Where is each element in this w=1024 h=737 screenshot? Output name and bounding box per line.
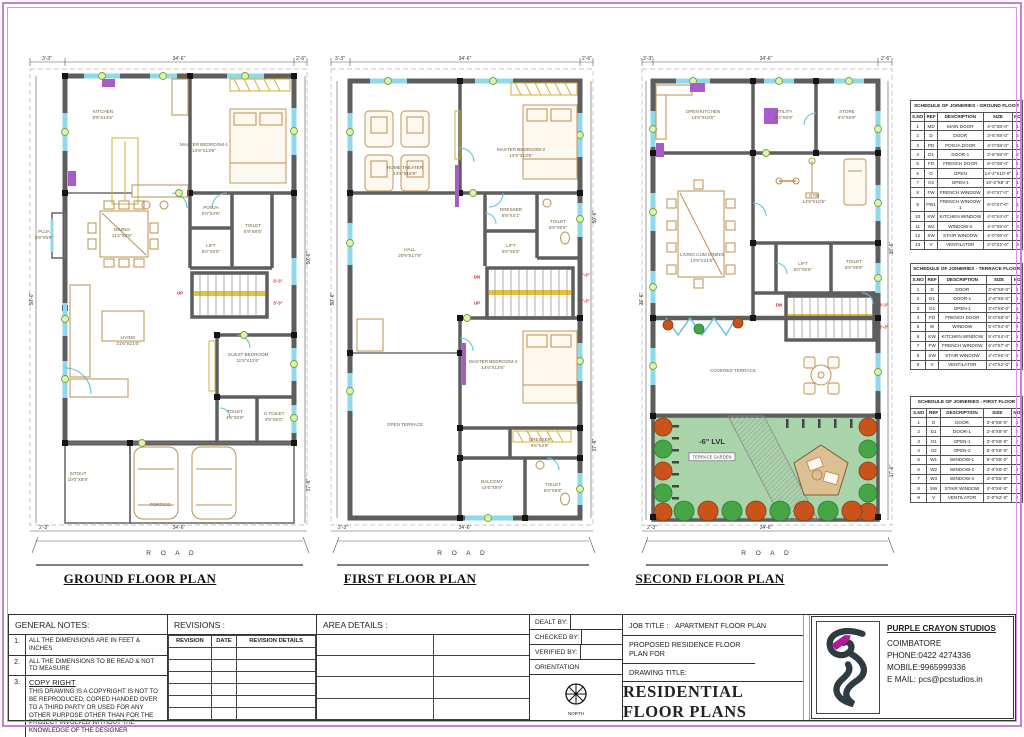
revisions-table: REVISIONDATEREVISION DETAILS <box>168 635 316 720</box>
room-label: STORE8'3"X6'9" <box>838 109 856 121</box>
revisions-header: REVISIONDATEREVISION DETAILS <box>169 636 316 648</box>
drawing-title-label: DRAWING TITLE: <box>623 664 803 682</box>
room-label: TOILET5'9"X8'6" <box>244 223 262 235</box>
plan-title-first: FIRST FLOOR PLAN <box>320 571 500 587</box>
schedule-terrace-floor: SCHEDULE OF JOINERIES - TERRACE FLOORS.N… <box>910 263 1023 370</box>
room-label: MASTER BEDROOM-114'9"X13'6" <box>180 142 228 154</box>
company-email: E MAIL: pcs@pcstudios.in <box>887 674 996 686</box>
stair-annotation: DN <box>474 275 480 280</box>
note-row: 1. ALL THE DIMENSIONS ARE IN FEET & INCH… <box>9 635 167 656</box>
job-section: JOB TITLE : APARTMENT FLOOR PLAN PROPOSE… <box>623 615 803 720</box>
plan-title-ground: GROUND FLOOR PLAN <box>30 571 250 587</box>
room-label: TOILET5'9"X8'6" <box>549 219 567 231</box>
room-label: TERRACE GARDEN <box>688 452 735 461</box>
company-logo <box>816 621 880 714</box>
room-label: TOILET4'6"X5'6" <box>226 409 244 421</box>
stair-annotation: 3'-3" <box>580 273 589 278</box>
company-section: PURPLE CRAYON STUDIOS COIMBATORE PHONE:0… <box>811 616 1014 719</box>
compass-icon <box>556 680 596 710</box>
company-mobile: MOBILE:9965999336 <box>887 662 996 674</box>
title-block: GENERAL NOTES: 1. ALL THE DIMENSIONS ARE… <box>8 614 1016 721</box>
room-label: -6" LVL <box>699 437 725 447</box>
stair-annotation: 3'-3" <box>879 325 888 330</box>
compass-label: NORTH <box>568 711 584 716</box>
company-name: PURPLE CRAYON STUDIOS <box>887 623 996 635</box>
room-label: LIFT5'0"X5'5" <box>794 261 812 273</box>
copyright-heading: COPY RIGHT <box>29 678 164 687</box>
room-label: OPEN TERRACE <box>387 422 423 428</box>
room-label: OPEN KITCHEN13'9"X10'6" <box>686 109 720 121</box>
purple-crayon-logo-icon <box>821 624 875 712</box>
job-title-label: JOB TITLE : <box>629 621 668 630</box>
company-city: COIMBATORE <box>887 638 996 650</box>
plan-title-second: SECOND FLOOR PLAN <box>620 571 800 587</box>
schedule-table: SCHEDULE OF JOINERIES - TERRACE FLOORS.N… <box>910 263 1023 370</box>
purple-divider <box>803 615 810 720</box>
room-label: MASTER BEDROOM-314'6"X13'6" <box>469 359 517 371</box>
schedule-first-floor: SCHEDULE OF JOINERIES - FIRST FLOORS.NOR… <box>910 396 1023 503</box>
room-label: LIVING21'6"X21'6" <box>116 335 139 347</box>
room-label: TOILET6'6"X8'6" <box>544 482 562 494</box>
room-label: POOJA5'0"X4'6" <box>202 205 220 217</box>
stair-annotation: 3'-3" <box>580 299 589 304</box>
second-floor-labels: OPEN KITCHEN13'9"X10'6"UTILITY8'3"X6'9"S… <box>636 53 906 573</box>
stair-annotation: UP <box>474 301 480 306</box>
area-details-section: AREA DETAILS : <box>317 615 530 720</box>
stair-annotation: 3'-3" <box>273 279 282 284</box>
job-title-value: APARTMENT FLOOR PLAN <box>675 621 766 630</box>
room-label: GYM14'9"X10'6" <box>802 193 825 205</box>
revisions-body <box>169 647 316 720</box>
room-label: KITCHEN8'9"X13'6" <box>93 109 114 121</box>
room-label: TOILET5'9"X5'6" <box>845 259 863 271</box>
dealt-by-row: DEALT BY: <box>530 615 622 630</box>
verified-by-row: VERIFIED BY: <box>530 645 622 660</box>
stair-annotation: 3'-3" <box>273 301 282 306</box>
room-label: G.TOILET4'9"X5'0" <box>264 411 285 423</box>
room-label: LIFT5'0"X5'5" <box>502 243 520 255</box>
copyright-text: THIS DRAWING IS A COPYRIGHT IS NOT TO BE… <box>29 688 158 734</box>
ground-floor-plan: 3'-3" 34'-6" 2'-6" 50'-6" 50'-6" 17'-6" <box>22 53 312 573</box>
room-label: LIFT5'0"X5'5" <box>202 243 220 255</box>
room-label: UTILITY8'3"X6'9" <box>775 109 793 121</box>
room-label: LIVING CUM DINING13'9"X21'6" <box>680 252 724 264</box>
schedule-table: SCHEDULE OF JOINERIES - GROUND FLOORS.NO… <box>910 100 1023 250</box>
first-floor-labels: HOME THEATER13'9"X15'9"MASTER BEDROOM-21… <box>325 53 605 573</box>
room-label: HALL20'9"X17'9" <box>398 247 421 259</box>
drawing-sheet: { "plans": [ { "title": "GROUND FLOOR PL… <box>0 0 1024 729</box>
checked-by-row: CHECKED BY: <box>530 630 622 645</box>
revisions-title: REVISIONS : <box>168 615 316 635</box>
ground-floor-labels: KITCHEN8'9"X13'6"MASTER BEDROOM-114'9"X1… <box>22 53 312 573</box>
room-label: DRESSER9'6"X4'6" <box>529 437 551 449</box>
room-label: SITOUT10'0"X8'9" <box>68 471 89 483</box>
general-notes-section: GENERAL NOTES: 1. ALL THE DIMENSIONS ARE… <box>9 615 168 720</box>
schedule-ground-floor: SCHEDULE OF JOINERIES - GROUND FLOORS.NO… <box>910 100 1023 250</box>
company-phone: PHONE:0422 4274336 <box>887 650 996 662</box>
revisions-section: REVISIONS : REVISIONDATEREVISION DETAILS <box>168 615 317 720</box>
room-label: DRESSER6'9"X4'1" <box>500 207 522 219</box>
room-label: MASTER BEDROOM-214'9"X13'6" <box>497 147 545 159</box>
stair-annotation: 3'-3" <box>879 303 888 308</box>
note-row: 2. ALL THE DIMENSIONS TO BE READ & NOT T… <box>9 656 167 677</box>
room-label: BALCONY14'6"X9'9" <box>481 479 503 491</box>
note-row: 3. COPY RIGHT THIS DRAWING IS A COPYRIGH… <box>9 676 167 737</box>
schedule-table: SCHEDULE OF JOINERIES - FIRST FLOORS.NOR… <box>910 396 1023 503</box>
orientation-compass: NORTH <box>530 675 622 720</box>
orientation-row: ORIENTATION <box>530 660 622 675</box>
proposed-text: PROPOSED RESIDENCE FLOOR PLAN FOR <box>623 636 755 664</box>
area-details-body <box>317 635 529 720</box>
room-label: COVERED TERRACE <box>710 368 756 374</box>
room-label: DINING11'2"X8'6" <box>112 227 133 239</box>
room-label: GUEST BEDROOM11'6"X12'6" <box>228 352 269 364</box>
signoff-section: DEALT BY: CHECKED BY: VERIFIED BY: ORIEN… <box>530 615 623 720</box>
drawing-title: RESIDENTIAL FLOOR PLANS <box>623 682 803 722</box>
general-notes-title: GENERAL NOTES: <box>9 615 167 635</box>
area-details-table <box>317 635 529 720</box>
room-label: HOME THEATER13'9"X15'9" <box>387 165 423 177</box>
stair-annotation: UP <box>177 291 183 296</box>
room-label: PORTICO <box>150 502 171 508</box>
first-floor-plan: 3'-3" 34'-6" 2'-6" 50'-6" 50'-6" 17'-6" <box>325 53 605 573</box>
stair-annotation: DN <box>776 303 782 308</box>
area-details-title: AREA DETAILS : <box>317 615 529 635</box>
second-floor-plan: 3'-3" 34'-6" 2'-6" 36'-6" 36'-6" 17'-6" <box>636 53 906 573</box>
room-label: PUJA5'9"X5'6" <box>35 229 53 241</box>
